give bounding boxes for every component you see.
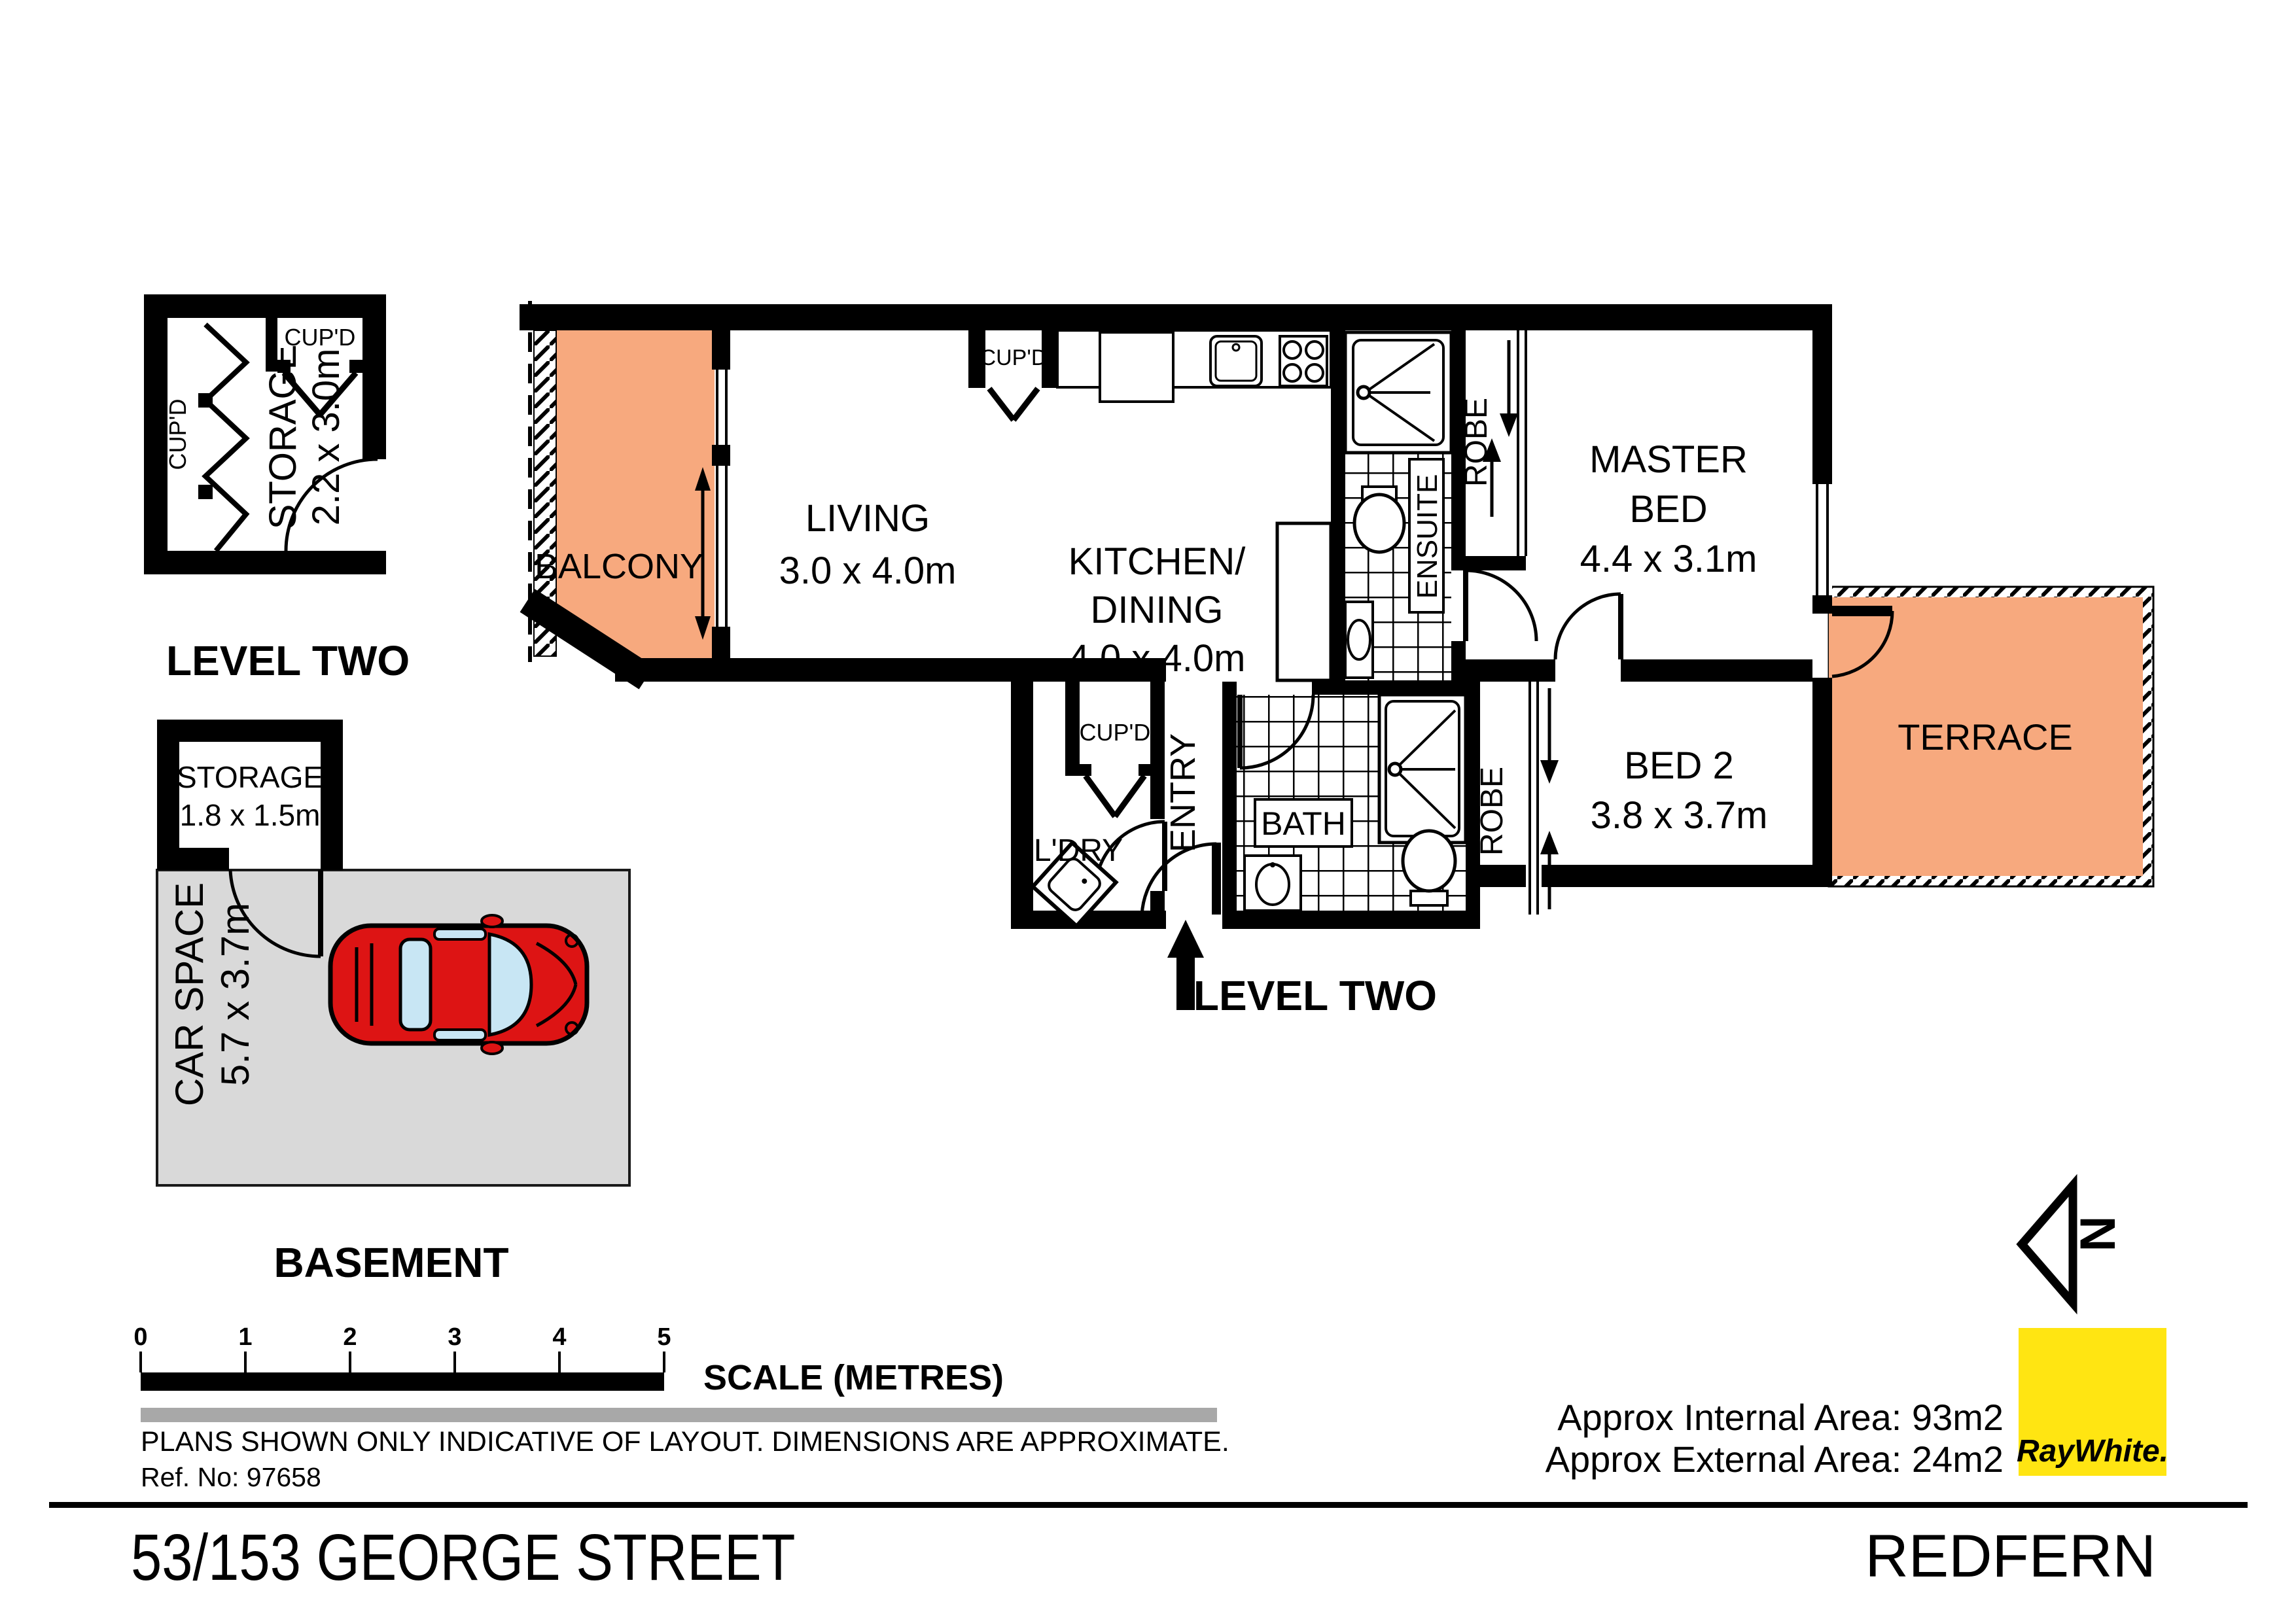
laundry-label: L'DRY <box>1034 833 1123 868</box>
scale-bar-rule <box>141 1372 664 1391</box>
raywhite-logo: RayWhite. <box>2017 1328 2168 1476</box>
scale-caption: SCALE (METRES) <box>703 1358 1004 1397</box>
basement-storage-label: STORAGE <box>177 760 323 794</box>
master-robe-label: ROBE <box>1459 398 1494 487</box>
north-label: N <box>2070 1216 2126 1252</box>
basement-plan: STORAGE 1.8 x 1.5m CAR SPACE 5.7 x 3.7m … <box>157 720 629 1286</box>
shower-icon <box>1345 332 1451 453</box>
storage-level-two-plan: CUP'D CUP'D STORAGE 2.2 x 3.0m LEVEL TWO <box>144 294 410 684</box>
kitchen-cupboard: CUP'D <box>980 345 1048 420</box>
entry-label: ENTRY <box>1163 733 1203 852</box>
scale-ticks <box>141 1352 664 1372</box>
reference-number: Ref. No: 97658 <box>141 1462 321 1492</box>
bed2-robe-label: ROBE <box>1475 767 1510 856</box>
bath-label: BATH <box>1261 805 1346 842</box>
basement-storage-dims: 1.8 x 1.5m <box>180 798 321 832</box>
master-door <box>1555 594 1621 659</box>
door-swing-icon <box>1466 570 1536 641</box>
door-jamb <box>198 485 213 499</box>
terrace-hatch <box>2143 587 2153 886</box>
bifold-door-icon <box>205 324 246 551</box>
toilet-icon <box>1403 831 1455 905</box>
storage-cupboard-left-label: CUP'D <box>164 399 191 470</box>
door-jamb <box>1139 764 1150 776</box>
master-dims: 4.4 x 3.1m <box>1580 538 1757 580</box>
car-space-dims: 5.7 x 3.7m <box>213 903 257 1086</box>
bed2-dims: 3.8 x 3.7m <box>1591 794 1768 837</box>
footer-suburb: REDFERN <box>1865 1523 2156 1590</box>
entry-arrow-icon <box>1176 956 1195 1010</box>
wall <box>321 720 343 870</box>
floor-plan-page: CUP'D CUP'D STORAGE 2.2 x 3.0m LEVEL TWO… <box>0 0 2296 1623</box>
basement-floor-label: BASEMENT <box>274 1239 508 1286</box>
master-label-line2: BED <box>1629 488 1707 531</box>
raywhite-logo-text: RayWhite. <box>2017 1434 2168 1469</box>
scale-bar: 0 1 2 3 4 5 SCALE (METRES) PLANS SHOWN O… <box>133 1323 1229 1492</box>
storage-room-label: STORAGE <box>262 345 304 530</box>
sink-icon <box>1210 336 1262 386</box>
cupboard-door-icon <box>989 389 1038 420</box>
storage-room-dims: 2.2 x 3.0m <box>305 349 347 526</box>
laundry-cupboard-label: CUP'D <box>1080 719 1151 746</box>
ensuite-label: ENSUITE <box>1411 474 1443 599</box>
scale-tick-1: 1 <box>238 1323 252 1351</box>
disclaimer-text: PLANS SHOWN ONLY INDICATIVE OF LAYOUT. D… <box>141 1426 1229 1457</box>
cooktop-icon <box>1280 336 1327 386</box>
kitchen-label-line1: KITCHEN/ <box>1069 540 1246 583</box>
shower-icon <box>1379 695 1466 843</box>
kitchen-dims: 4.0 x 4.0m <box>1069 637 1246 680</box>
kitchen-island <box>1277 523 1331 680</box>
door-leaf <box>1832 606 1892 616</box>
wall <box>362 294 386 459</box>
door-jamb <box>1080 764 1091 776</box>
wall <box>144 294 386 318</box>
external-area-text: Approx External Area: 24m2 <box>1545 1439 2004 1480</box>
terrace-hatch <box>1829 587 2153 597</box>
living-dims: 3.0 x 4.0m <box>779 550 957 592</box>
car-space-label: CAR SPACE <box>168 882 211 1106</box>
wall <box>157 720 343 742</box>
scale-tick-0: 0 <box>133 1323 147 1351</box>
footer-rule <box>49 1502 2248 1508</box>
scale-tick-3: 3 <box>448 1323 461 1351</box>
footer-address: 53/153 GEORGE STREET <box>131 1520 796 1594</box>
bed2-label: BED 2 <box>1624 744 1734 787</box>
vanity-icon <box>1345 602 1373 678</box>
wall <box>144 551 386 574</box>
apartment-floor-label: LEVEL TWO <box>1193 972 1437 1019</box>
wall <box>157 720 179 870</box>
car-icon <box>330 915 587 1054</box>
scale-tick-5: 5 <box>657 1323 671 1351</box>
area-summary: Approx Internal Area: 93m2 Approx Extern… <box>1545 1397 2004 1480</box>
kitchen-label-line2: DINING <box>1091 589 1224 631</box>
cupboard-door-icon <box>1086 776 1144 816</box>
master-window <box>1812 484 1832 595</box>
basin-icon <box>1245 856 1301 911</box>
door-swing-icon <box>1555 594 1621 659</box>
divider-bar <box>141 1408 1217 1422</box>
entry-arrow-icon <box>1167 920 1204 958</box>
master-label-line1: MASTER <box>1589 438 1748 481</box>
north-arrow-icon: N <box>2022 1185 2126 1303</box>
scale-tick-2: 2 <box>343 1323 357 1351</box>
scale-tick-4: 4 <box>552 1323 566 1351</box>
kitchen-cupboard-label: CUP'D <box>980 345 1048 370</box>
living-label: LIVING <box>805 497 930 540</box>
apartment-plan: CUP'D <box>520 301 2153 1019</box>
storage-floor-label: LEVEL TWO <box>166 637 410 684</box>
terrace-hatch <box>1829 876 2153 886</box>
internal-area-text: Approx Internal Area: 93m2 <box>1557 1397 2004 1438</box>
toilet-icon <box>1354 487 1404 552</box>
door-jamb <box>349 360 362 373</box>
terrace-label: TERRACE <box>1898 716 2073 758</box>
door-jamb <box>198 393 213 408</box>
balcony-label: BALCONY <box>535 547 703 586</box>
door-leaf <box>1212 843 1221 915</box>
wall <box>157 848 229 870</box>
